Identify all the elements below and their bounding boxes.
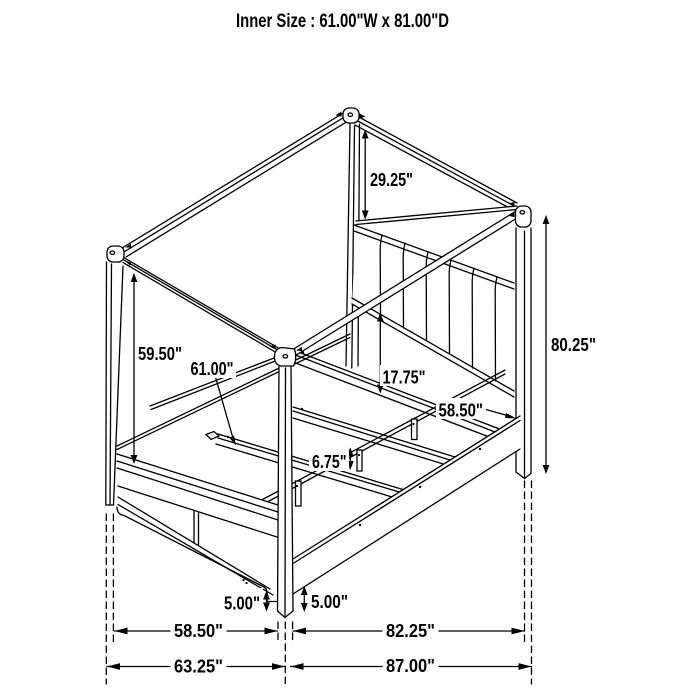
svg-text:29.25": 29.25": [370, 169, 413, 190]
svg-text:5.00": 5.00": [224, 593, 260, 614]
svg-text:61.00": 61.00": [191, 358, 234, 379]
svg-text:63.25": 63.25": [174, 656, 223, 677]
svg-text:5.00": 5.00": [311, 591, 348, 612]
svg-text:6.75": 6.75": [312, 451, 347, 472]
svg-text:58.50": 58.50": [439, 400, 484, 421]
svg-text:58.50": 58.50": [174, 620, 223, 641]
svg-text:82.25": 82.25": [386, 620, 435, 641]
svg-text:80.25": 80.25": [551, 334, 596, 355]
svg-text:Inner Size : 61.00"W x 81.00"D: Inner Size : 61.00"W x 81.00"D: [236, 11, 449, 32]
svg-text:17.75": 17.75": [383, 367, 426, 388]
svg-text:59.50": 59.50": [138, 343, 182, 364]
svg-text:87.00": 87.00": [386, 655, 435, 676]
